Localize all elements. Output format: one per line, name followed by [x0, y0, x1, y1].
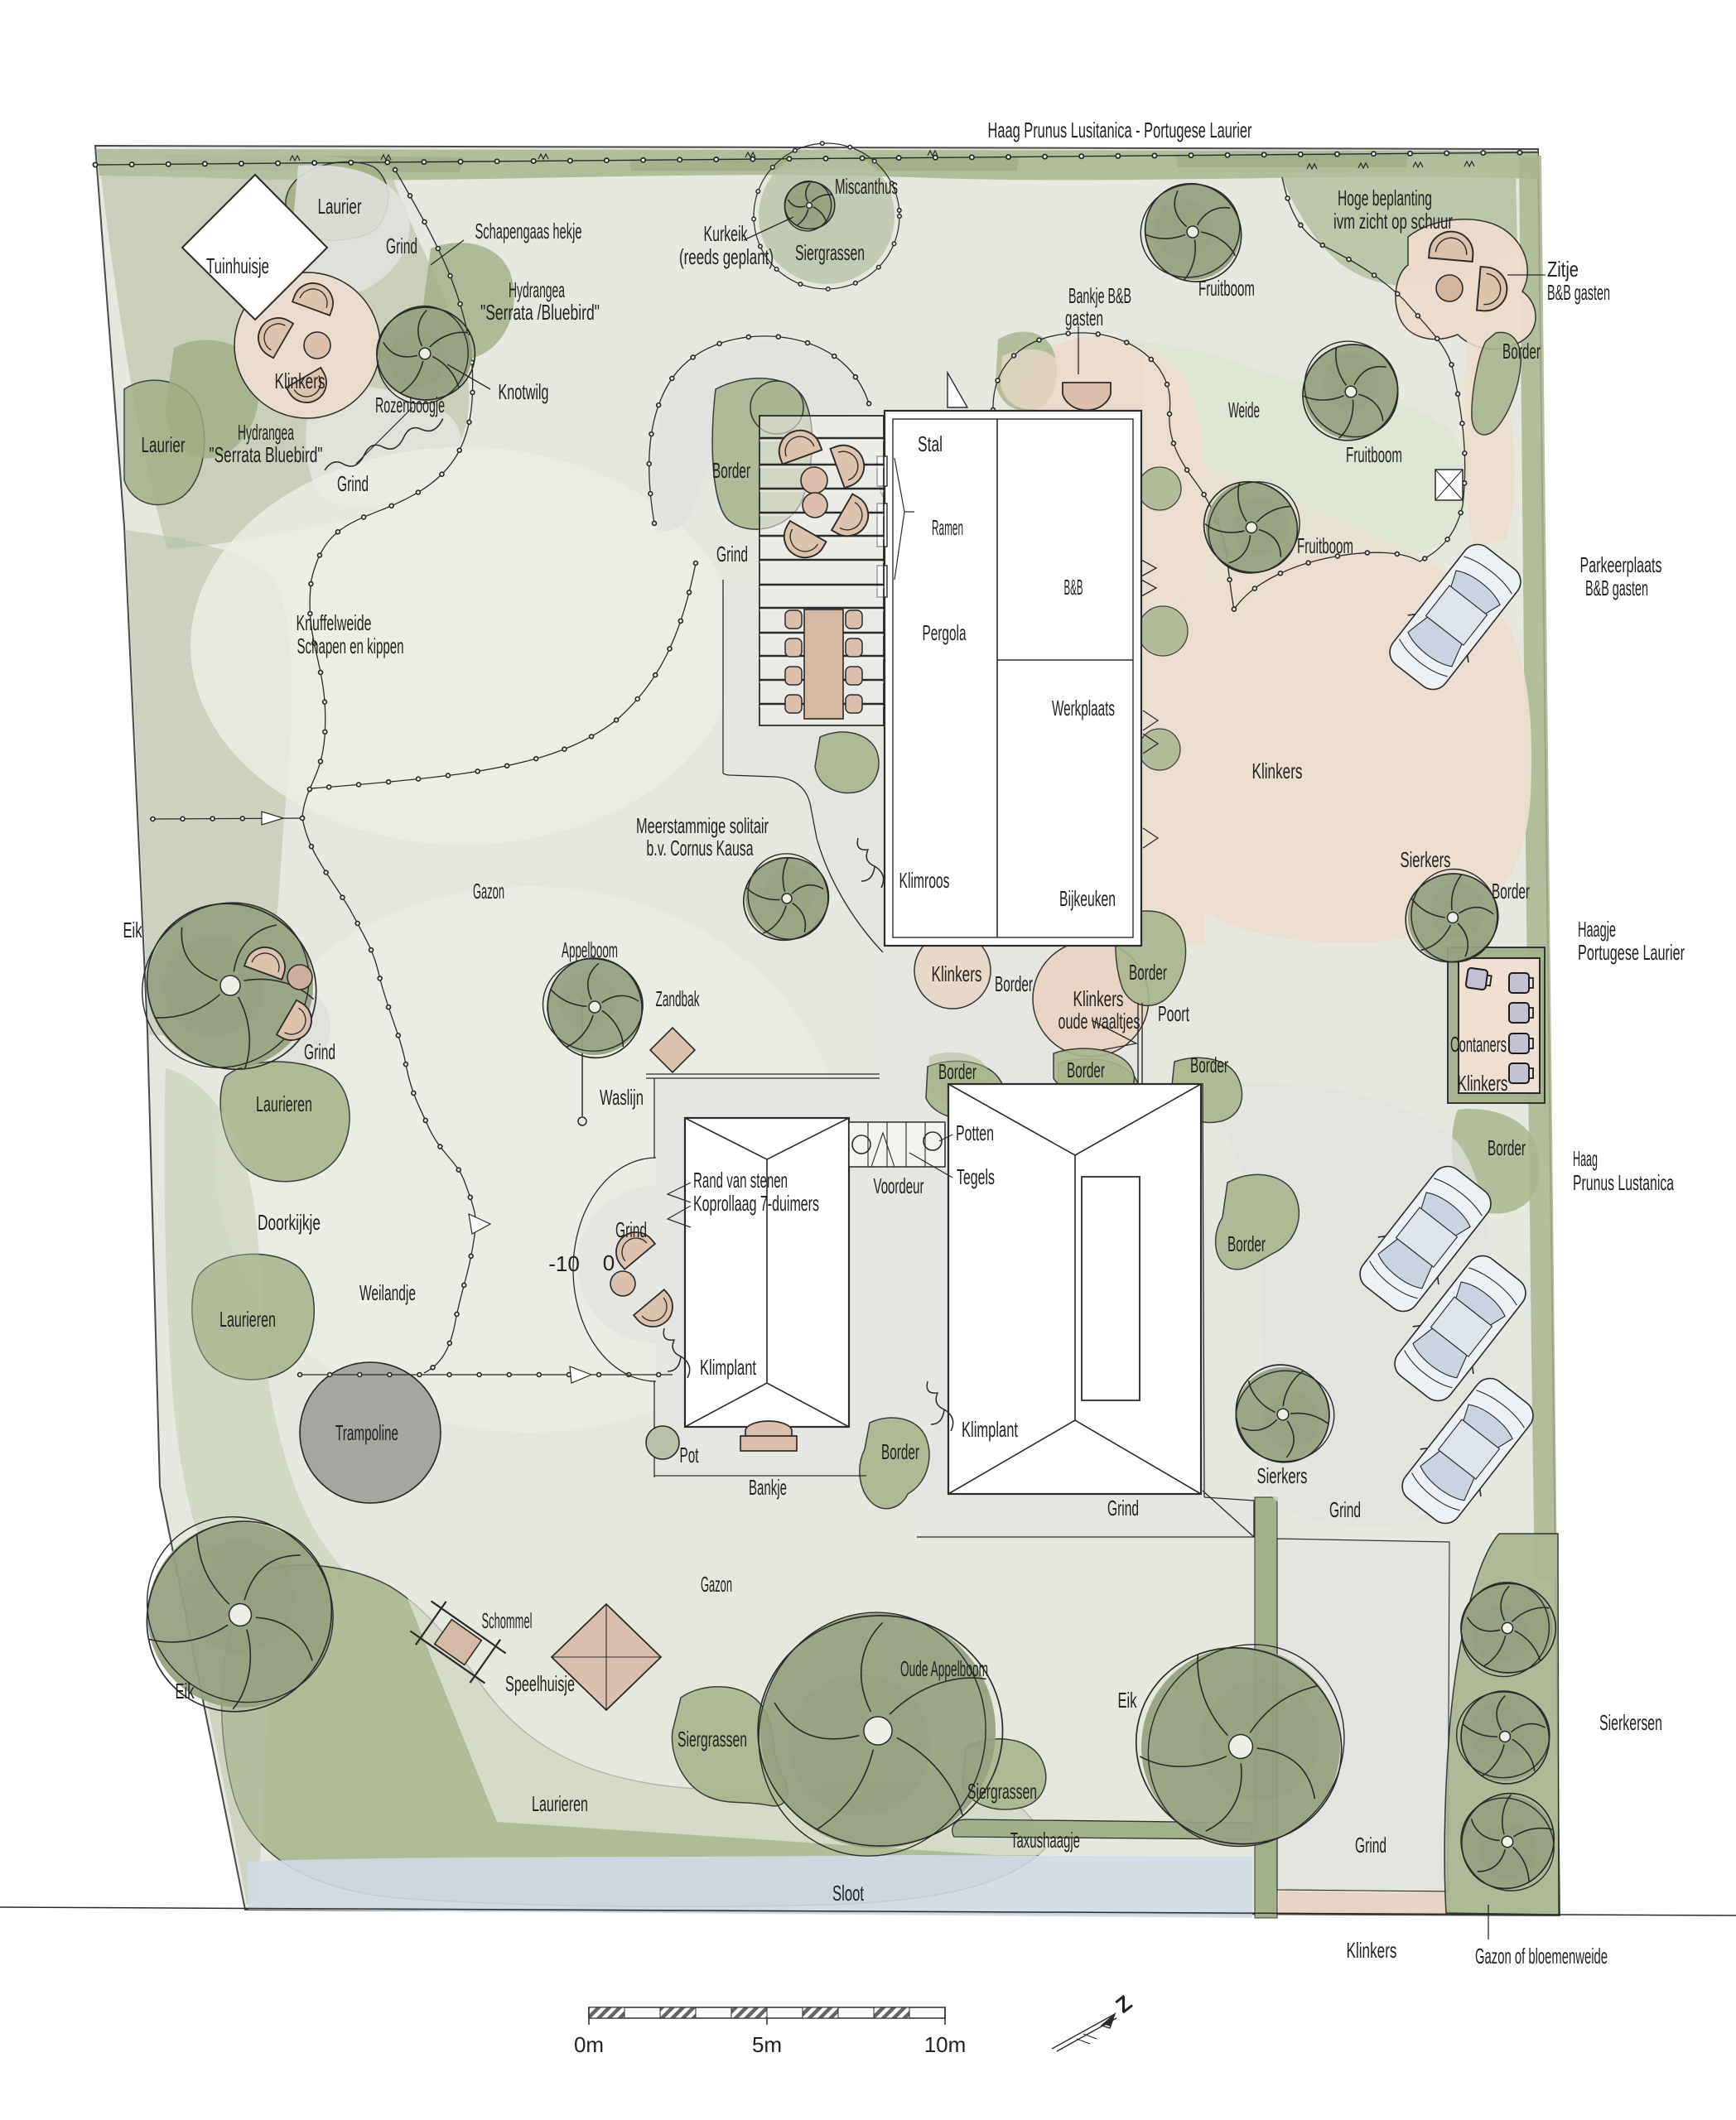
svg-text:Border: Border: [995, 971, 1033, 996]
svg-text:ivm zicht op schuur: ivm zicht op schuur: [1333, 209, 1453, 234]
svg-text:Siergrassen: Siergrassen: [795, 240, 865, 265]
svg-text:Zitje: Zitje: [1547, 257, 1579, 282]
svg-text:Klinkers: Klinkers: [1073, 986, 1124, 1011]
svg-text:Klinkers: Klinkers: [1347, 1938, 1397, 1963]
svg-text:Laurieren: Laurieren: [219, 1307, 276, 1332]
svg-text:Sloot: Sloot: [832, 1881, 864, 1906]
svg-text:Border: Border: [712, 458, 750, 483]
svg-text:Grind: Grind: [386, 234, 417, 258]
svg-text:Klinkers: Klinkers: [1252, 759, 1303, 783]
svg-text:Border: Border: [1488, 1135, 1526, 1160]
svg-text:Knuffelweide: Knuffelweide: [297, 610, 372, 635]
svg-text:Eik: Eik: [123, 918, 143, 942]
svg-text:Gazon: Gazon: [473, 879, 504, 903]
svg-text:Klinkers: Klinkers: [932, 961, 982, 986]
svg-text:Grind: Grind: [1329, 1497, 1361, 1522]
svg-text:b.v. Cornus Kausa: b.v. Cornus Kausa: [647, 836, 754, 860]
svg-text:Eik: Eik: [176, 1679, 195, 1703]
svg-text:Sierkersen: Sierkersen: [1599, 1710, 1662, 1735]
svg-text:Doorkijkje: Doorkijkje: [258, 1210, 321, 1235]
svg-text:Laurieren: Laurieren: [256, 1091, 312, 1116]
svg-text:B&B gasten: B&B gasten: [1547, 280, 1610, 305]
svg-text:0: 0: [603, 1250, 615, 1275]
svg-text:Schapengaas hekje: Schapengaas hekje: [475, 219, 582, 243]
svg-text:Stal: Stal: [918, 431, 943, 456]
svg-text:Border: Border: [1502, 339, 1541, 364]
svg-text:Border: Border: [938, 1059, 976, 1084]
svg-text:Border: Border: [1129, 960, 1167, 985]
svg-text:Klinkers: Klinkers: [1458, 1071, 1508, 1096]
svg-text:Border: Border: [1067, 1058, 1105, 1082]
svg-text:Kurkeik: Kurkeik: [704, 221, 749, 246]
svg-text:Waslijn: Waslijn: [600, 1085, 644, 1110]
svg-text:Speelhuisje: Speelhuisje: [505, 1671, 575, 1696]
svg-text:Grind: Grind: [304, 1039, 335, 1064]
svg-text:Haag Prunus Lusitanica - Portu: Haag Prunus Lusitanica - Portugese Lauri…: [988, 118, 1252, 142]
svg-text:Fruitboom: Fruitboom: [1346, 442, 1402, 467]
svg-text:Sierkers: Sierkers: [1401, 847, 1451, 872]
svg-text:Parkeerplaats: Parkeerplaats: [1580, 552, 1662, 577]
svg-text:Hydrangea: Hydrangea: [238, 420, 294, 445]
svg-text:Zandbak: Zandbak: [656, 986, 701, 1011]
svg-text:Klimroos: Klimroos: [899, 868, 950, 893]
svg-text:Rozenboogje: Rozenboogje: [375, 393, 445, 417]
svg-text:Contaners: Contaners: [1450, 1032, 1507, 1057]
svg-text:Taxushaagje: Taxushaagje: [1010, 1828, 1080, 1853]
svg-text:0m: 0m: [574, 2032, 604, 2057]
svg-text:Trampoline: Trampoline: [335, 1420, 398, 1445]
svg-text:Grind: Grind: [615, 1217, 647, 1242]
svg-text:Schommel: Schommel: [482, 1608, 533, 1633]
svg-text:gasten: gasten: [1065, 306, 1103, 330]
svg-text:Rand van stenen: Rand van stenen: [693, 1168, 788, 1192]
svg-text:Koprollaag 7-duimers: Koprollaag 7-duimers: [693, 1191, 819, 1216]
svg-text:Gazon of bloemenweide: Gazon of bloemenweide: [1475, 1944, 1608, 1968]
svg-text:Voordeur: Voordeur: [874, 1173, 924, 1198]
svg-text:Werkplaats: Werkplaats: [1052, 696, 1115, 720]
svg-text:Klinkers: Klinkers: [275, 369, 325, 393]
svg-text:"Serrata Bluebird": "Serrata Bluebird": [210, 442, 323, 467]
svg-text:(reeds geplant): (reeds geplant): [679, 244, 774, 269]
svg-text:Weide: Weide: [1228, 397, 1260, 422]
svg-text:Bankje B&B: Bankje B&B: [1068, 283, 1131, 308]
svg-text:Eik: Eik: [1118, 1688, 1138, 1713]
svg-text:Bankje: Bankje: [749, 1475, 787, 1500]
svg-text:Poort: Poort: [1158, 1001, 1189, 1026]
svg-text:B&B: B&B: [1064, 575, 1083, 600]
svg-text:Pergola: Pergola: [923, 620, 967, 645]
svg-text:Knotwilg: Knotwilg: [499, 379, 549, 404]
svg-text:Border: Border: [1227, 1231, 1266, 1256]
svg-text:Siergrassen: Siergrassen: [967, 1779, 1037, 1804]
svg-text:Hydrangea: Hydrangea: [509, 277, 565, 302]
svg-text:Ramen: Ramen: [932, 515, 963, 540]
svg-text:Border: Border: [1492, 879, 1530, 903]
svg-text:Laurier: Laurier: [318, 194, 362, 219]
svg-text:Siergrassen: Siergrassen: [678, 1727, 747, 1751]
svg-text:Grind: Grind: [1355, 1833, 1386, 1857]
svg-text:Pot: Pot: [680, 1443, 699, 1467]
svg-text:Portugese Laurier: Portugese Laurier: [1578, 940, 1685, 965]
svg-text:Weilandje: Weilandje: [359, 1280, 416, 1305]
svg-text:Hoge beplanting: Hoge beplanting: [1338, 185, 1432, 210]
svg-text:Fruitboom: Fruitboom: [1198, 276, 1255, 301]
svg-text:Bijkeuken: Bijkeuken: [1059, 886, 1116, 911]
svg-text:Fruitboom: Fruitboom: [1297, 533, 1353, 558]
svg-text:Gazon: Gazon: [701, 1572, 732, 1597]
svg-text:oude waaltjes: oude waaltjes: [1058, 1009, 1140, 1033]
svg-text:Tuinhuisje: Tuinhuisje: [206, 253, 269, 278]
svg-text:Tegels: Tegels: [957, 1164, 995, 1189]
svg-text:Haagje: Haagje: [1578, 917, 1616, 942]
svg-text:Oude Appelboom: Oude Appelboom: [900, 1656, 988, 1681]
svg-text:Grind: Grind: [337, 471, 369, 496]
svg-text:Appelboom: Appelboom: [562, 937, 618, 962]
svg-text:Laurier: Laurier: [142, 432, 186, 457]
svg-text:B&B gasten: B&B gasten: [1585, 576, 1648, 600]
svg-text:Border: Border: [1190, 1053, 1228, 1077]
svg-text:Klimplant: Klimplant: [962, 1417, 1018, 1442]
svg-text:Miscanthus: Miscanthus: [835, 174, 898, 199]
svg-text:Grind: Grind: [1107, 1496, 1139, 1520]
svg-text:"Serrata /Bluebird": "Serrata /Bluebird": [480, 300, 600, 325]
svg-text:Meerstammige solitair: Meerstammige solitair: [636, 813, 769, 838]
svg-text:Klimplant: Klimplant: [700, 1355, 756, 1380]
svg-text:Haag: Haag: [1573, 1146, 1598, 1171]
svg-text:Border: Border: [881, 1439, 919, 1464]
svg-text:Prunus Lustanica: Prunus Lustanica: [1573, 1170, 1674, 1195]
svg-text:Laurieren: Laurieren: [532, 1791, 588, 1816]
svg-text:5m: 5m: [752, 2032, 782, 2057]
svg-text:Potten: Potten: [956, 1120, 994, 1145]
svg-text:-10: -10: [548, 1251, 580, 1276]
svg-text:10m: 10m: [924, 2032, 967, 2057]
svg-text:Sierkers: Sierkers: [1257, 1463, 1308, 1488]
svg-text:Grind: Grind: [716, 542, 748, 566]
svg-text:Schapen en kippen: Schapen en kippen: [297, 634, 404, 658]
